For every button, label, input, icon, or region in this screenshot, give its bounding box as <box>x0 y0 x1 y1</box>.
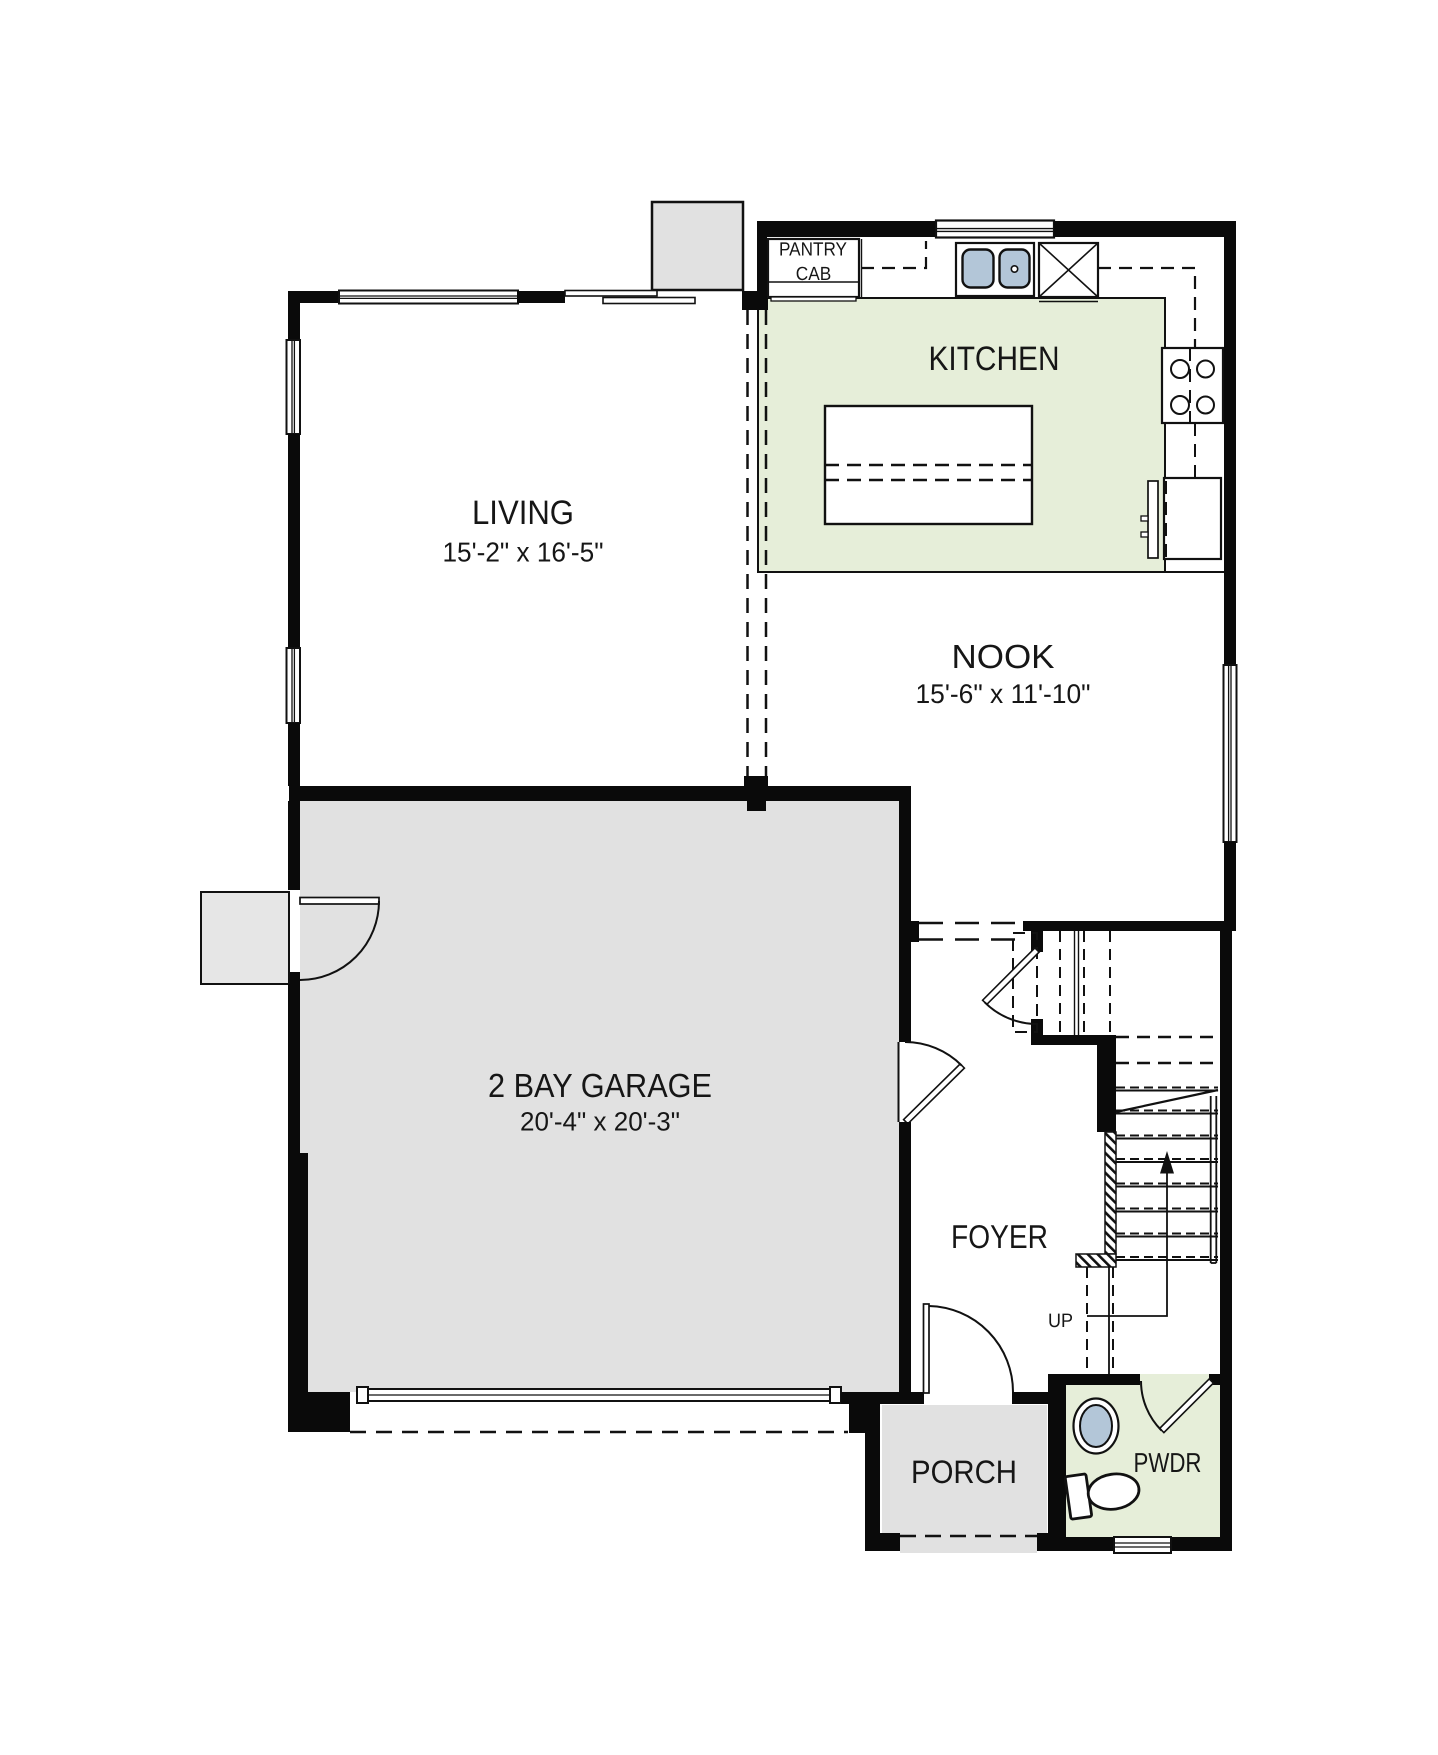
svg-text:CAB: CAB <box>796 264 832 285</box>
svg-text:15'-6" x 11'-10": 15'-6" x 11'-10" <box>916 679 1091 709</box>
svg-text:NOOK: NOOK <box>952 639 1055 676</box>
svg-text:2 BAY GARAGE: 2 BAY GARAGE <box>488 1068 712 1105</box>
svg-text:LIVING: LIVING <box>472 494 574 532</box>
svg-text:FOYER: FOYER <box>951 1218 1048 1255</box>
svg-text:20'-4" x 20'-3": 20'-4" x 20'-3" <box>520 1107 680 1137</box>
svg-text:UP: UP <box>1048 1310 1073 1332</box>
svg-text:PWDR: PWDR <box>1134 1447 1202 1478</box>
svg-text:KITCHEN: KITCHEN <box>929 340 1060 378</box>
svg-text:PANTRY: PANTRY <box>779 240 847 261</box>
svg-text:PORCH: PORCH <box>911 1454 1017 1490</box>
svg-text:15'-2" x 16'-5": 15'-2" x 16'-5" <box>443 537 604 568</box>
